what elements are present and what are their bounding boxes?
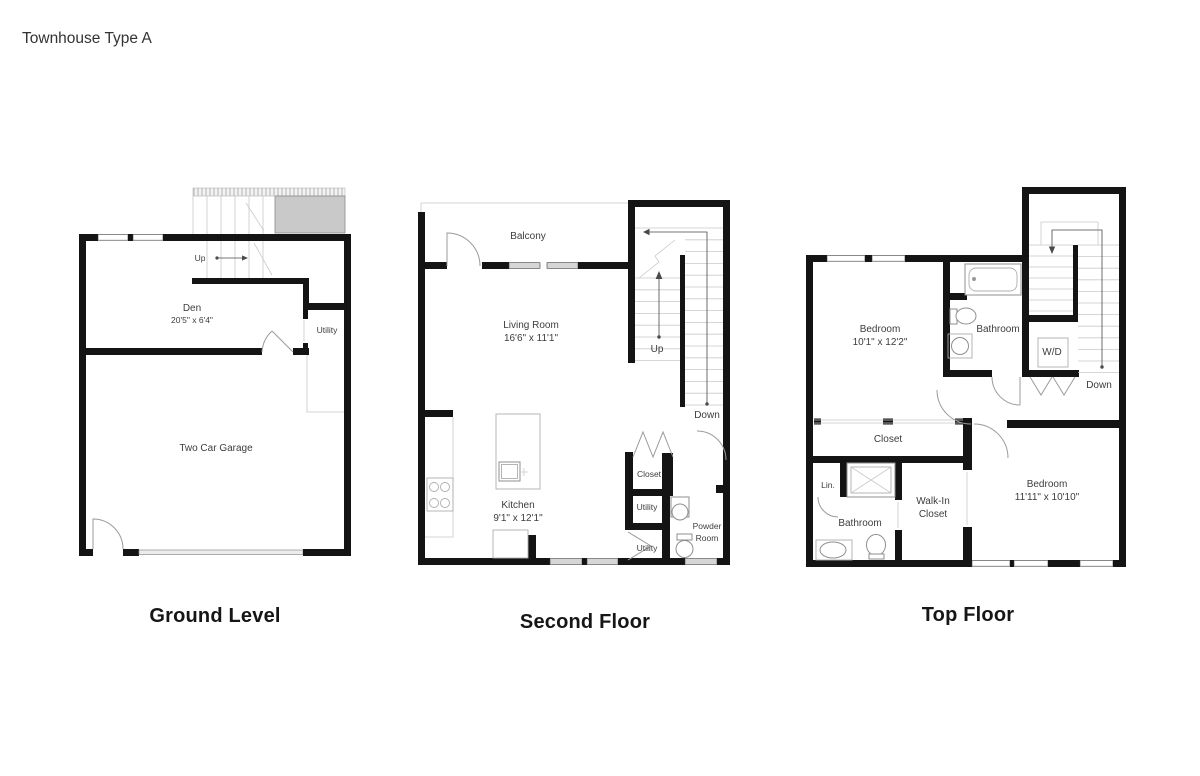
closet-label: Closet: [874, 434, 903, 445]
powder-room-label-2: Room: [696, 533, 719, 543]
closet-label: Closet: [637, 469, 662, 479]
bedroom1-label: Bedroom: [860, 324, 901, 335]
den-door: [262, 331, 293, 352]
window: [972, 561, 1010, 567]
kitchen-label: Kitchen: [501, 500, 534, 511]
stair-divider: [680, 255, 685, 407]
window: [587, 559, 618, 565]
window: [1080, 561, 1113, 567]
linen-label: Lin.: [821, 480, 835, 490]
bedroom2-dims-label: 11'11" x 10'10": [1015, 492, 1080, 503]
utility-upper-label: Utility: [637, 502, 659, 512]
sink1: [952, 338, 969, 355]
utility-lower-label: Utility: [637, 543, 659, 553]
balcony-outline: [421, 203, 628, 212]
stairs-down-label: Down: [694, 410, 720, 421]
wd-label: W/D: [1042, 347, 1061, 358]
second-fixtures: [425, 414, 693, 558]
second-labels: Balcony Living Room 16'6" x 11'1" Up Dow…: [493, 231, 721, 633]
stairs-down-label: Down: [1086, 380, 1112, 391]
bedroom1-dims-label: 10'1" x 12'2": [853, 337, 908, 348]
garage-door: [139, 550, 303, 555]
powder-toilet: [676, 541, 693, 558]
window: [872, 256, 905, 262]
bedroom2-label: Bedroom: [1027, 479, 1068, 490]
floor-plan-page: Townhouse Type A: [0, 0, 1200, 776]
ground-stairs: [193, 188, 345, 278]
window: [685, 559, 717, 565]
sink2: [820, 542, 846, 558]
stairs-up-label: Up: [195, 253, 206, 263]
top-walls: [806, 187, 1126, 567]
powder-toilet-tank: [677, 534, 692, 540]
bathroom2-label: Bathroom: [838, 518, 881, 529]
garage-label: Two Car Garage: [179, 443, 253, 454]
bathroom1-label: Bathroom: [976, 324, 1019, 335]
balcony-label: Balcony: [510, 231, 546, 242]
floor-plan-drawing: Townhouse Type A: [0, 0, 1200, 776]
ground-doors: [93, 331, 293, 549]
ground-walls: [79, 234, 351, 556]
living-room-dims-label: 16'6" x 11'1": [504, 333, 559, 344]
window: [509, 263, 540, 269]
balcony-door: [447, 233, 480, 266]
toilet2: [867, 535, 886, 556]
second-stairs: [635, 228, 723, 407]
window: [547, 263, 578, 269]
den-dims-label: 20'5" x 6'4": [171, 315, 213, 325]
window: [133, 235, 163, 241]
bathroom1-door: [992, 377, 1020, 405]
toilet2-tank: [869, 554, 884, 559]
linen-door: [818, 497, 838, 517]
stair-landing-block: [275, 196, 345, 233]
kitchen-dims-label: 9'1" x 12'1": [493, 513, 543, 524]
ground-level-title: Ground Level: [149, 605, 280, 627]
refrigerator: [493, 530, 528, 558]
entry-door: [93, 519, 123, 549]
window: [827, 256, 865, 262]
toilet1: [956, 308, 976, 324]
bedroom2-door: [974, 424, 1008, 458]
powder-room-door: [697, 431, 726, 460]
second-floor-title: Second Floor: [520, 611, 650, 633]
second-floor-plan: Balcony Living Room 16'6" x 11'1" Up Dow…: [418, 200, 730, 633]
ground-level-plan: Up Den 20'5" x 6'4" Utility Two Car Gara…: [79, 188, 351, 627]
walkin-label-2: Closet: [919, 509, 948, 520]
kitchen-counter: [425, 417, 453, 537]
den-label: Den: [183, 303, 201, 314]
top-floor-title: Top Floor: [922, 604, 1015, 626]
window: [98, 235, 128, 241]
page-title: Townhouse Type A: [22, 30, 152, 47]
stairs-up-label: Up: [651, 344, 664, 355]
window: [1014, 561, 1048, 567]
top-floor-plan: Bedroom 10'1" x 12'2" Bathroom W/D Down …: [806, 187, 1126, 626]
window: [550, 559, 582, 565]
walkin-label-1: Walk-In: [916, 496, 950, 507]
wd-bifold-door: [1030, 377, 1075, 395]
utility-label: Utility: [317, 325, 339, 335]
stair-divider: [1073, 245, 1078, 315]
powder-room-label-1: Powder: [693, 521, 722, 531]
living-room-label: Living Room: [503, 320, 559, 331]
